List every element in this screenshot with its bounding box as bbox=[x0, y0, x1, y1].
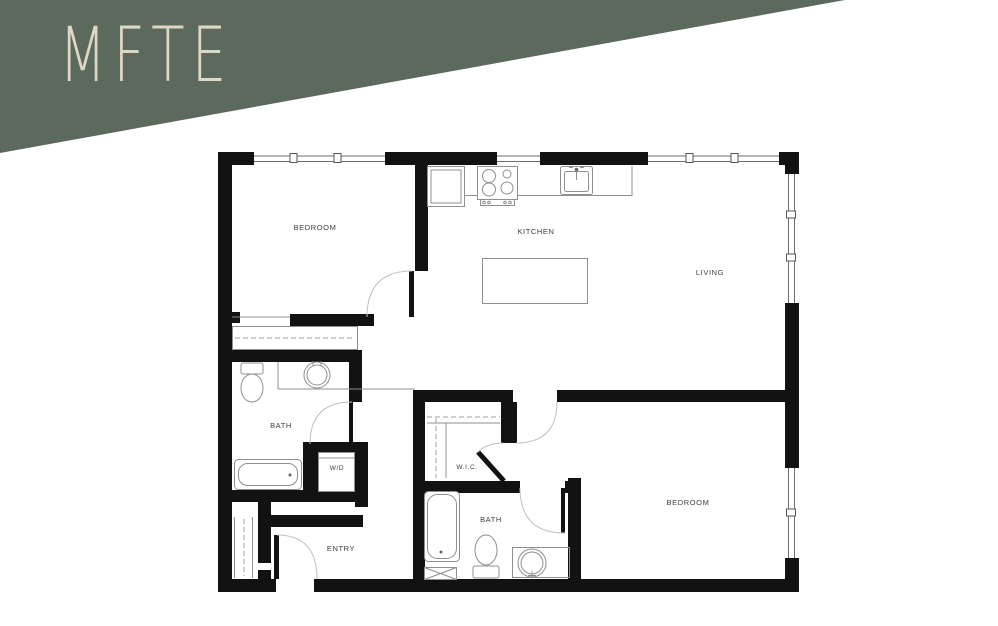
bath1-door bbox=[310, 402, 353, 444]
floor-plan: BEDROOM KITCHEN LIVING BATH W/D W.I.C. B… bbox=[0, 0, 998, 626]
kitchen-island bbox=[483, 259, 588, 304]
toilet-1 bbox=[241, 363, 263, 402]
window-top-1 bbox=[254, 152, 385, 165]
stove bbox=[478, 167, 518, 206]
wic-door bbox=[478, 443, 504, 481]
room-label-bedroom-2: BEDROOM bbox=[667, 498, 710, 507]
refrigerator bbox=[428, 167, 465, 207]
window-living-right bbox=[785, 174, 799, 303]
page: MFTE bbox=[0, 0, 998, 626]
bedroom2-door bbox=[513, 402, 557, 443]
floor-register bbox=[425, 568, 457, 580]
bathtub-1 bbox=[235, 460, 302, 490]
window-top-2 bbox=[497, 152, 540, 165]
room-label-laundry: W/D bbox=[330, 465, 344, 472]
room-label-wic: W.I.C. bbox=[456, 464, 477, 471]
sink-1 bbox=[304, 361, 330, 388]
entry-door bbox=[274, 535, 317, 579]
room-label-bedroom-1: BEDROOM bbox=[294, 223, 337, 232]
bath2-door bbox=[520, 488, 565, 533]
entry-closet bbox=[235, 517, 253, 578]
kitchen-sink bbox=[561, 167, 593, 195]
walls bbox=[218, 152, 799, 592]
room-labels: BEDROOM KITCHEN LIVING BATH W/D W.I.C. B… bbox=[270, 223, 724, 553]
room-label-living: LIVING bbox=[696, 268, 724, 277]
bathtub-2 bbox=[425, 492, 460, 562]
bedroom1-door bbox=[367, 271, 414, 317]
window-bedroom2-right bbox=[785, 468, 799, 558]
room-label-entry: ENTRY bbox=[327, 544, 355, 553]
room-label-bath-1: BATH bbox=[270, 421, 292, 430]
room-label-bath-2: BATH bbox=[480, 515, 502, 524]
room-label-kitchen: KITCHEN bbox=[517, 227, 554, 236]
toilet-2 bbox=[473, 535, 499, 578]
window-top-3 bbox=[648, 152, 779, 165]
washer-dryer bbox=[319, 453, 355, 492]
bath1-counter bbox=[278, 362, 415, 389]
sink-2 bbox=[518, 549, 546, 577]
